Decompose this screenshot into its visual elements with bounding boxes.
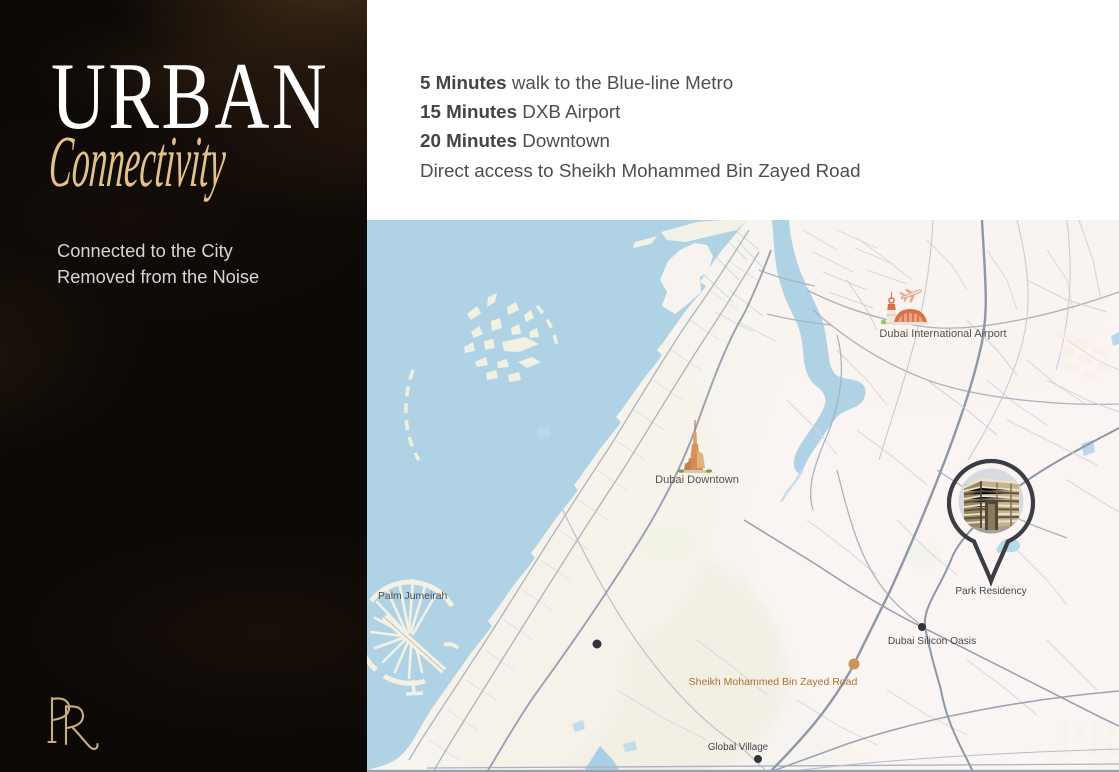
svg-text:Dubai Downtown: Dubai Downtown <box>655 474 739 486</box>
svg-text:PR: PR <box>1057 710 1119 767</box>
svg-text:Sheikh Mohammed Bin Zayed Road: Sheikh Mohammed Bin Zayed Road <box>689 676 858 688</box>
svg-text:Dubai Silicon Oasis: Dubai Silicon Oasis <box>888 636 976 647</box>
svg-text:Dubai International Airport: Dubai International Airport <box>879 328 1006 340</box>
svg-text:Palm Jumeirah: Palm Jumeirah <box>378 591 448 602</box>
svg-text:Park Residency: Park Residency <box>955 586 1027 597</box>
svg-text:Global Village: Global Village <box>708 742 769 753</box>
